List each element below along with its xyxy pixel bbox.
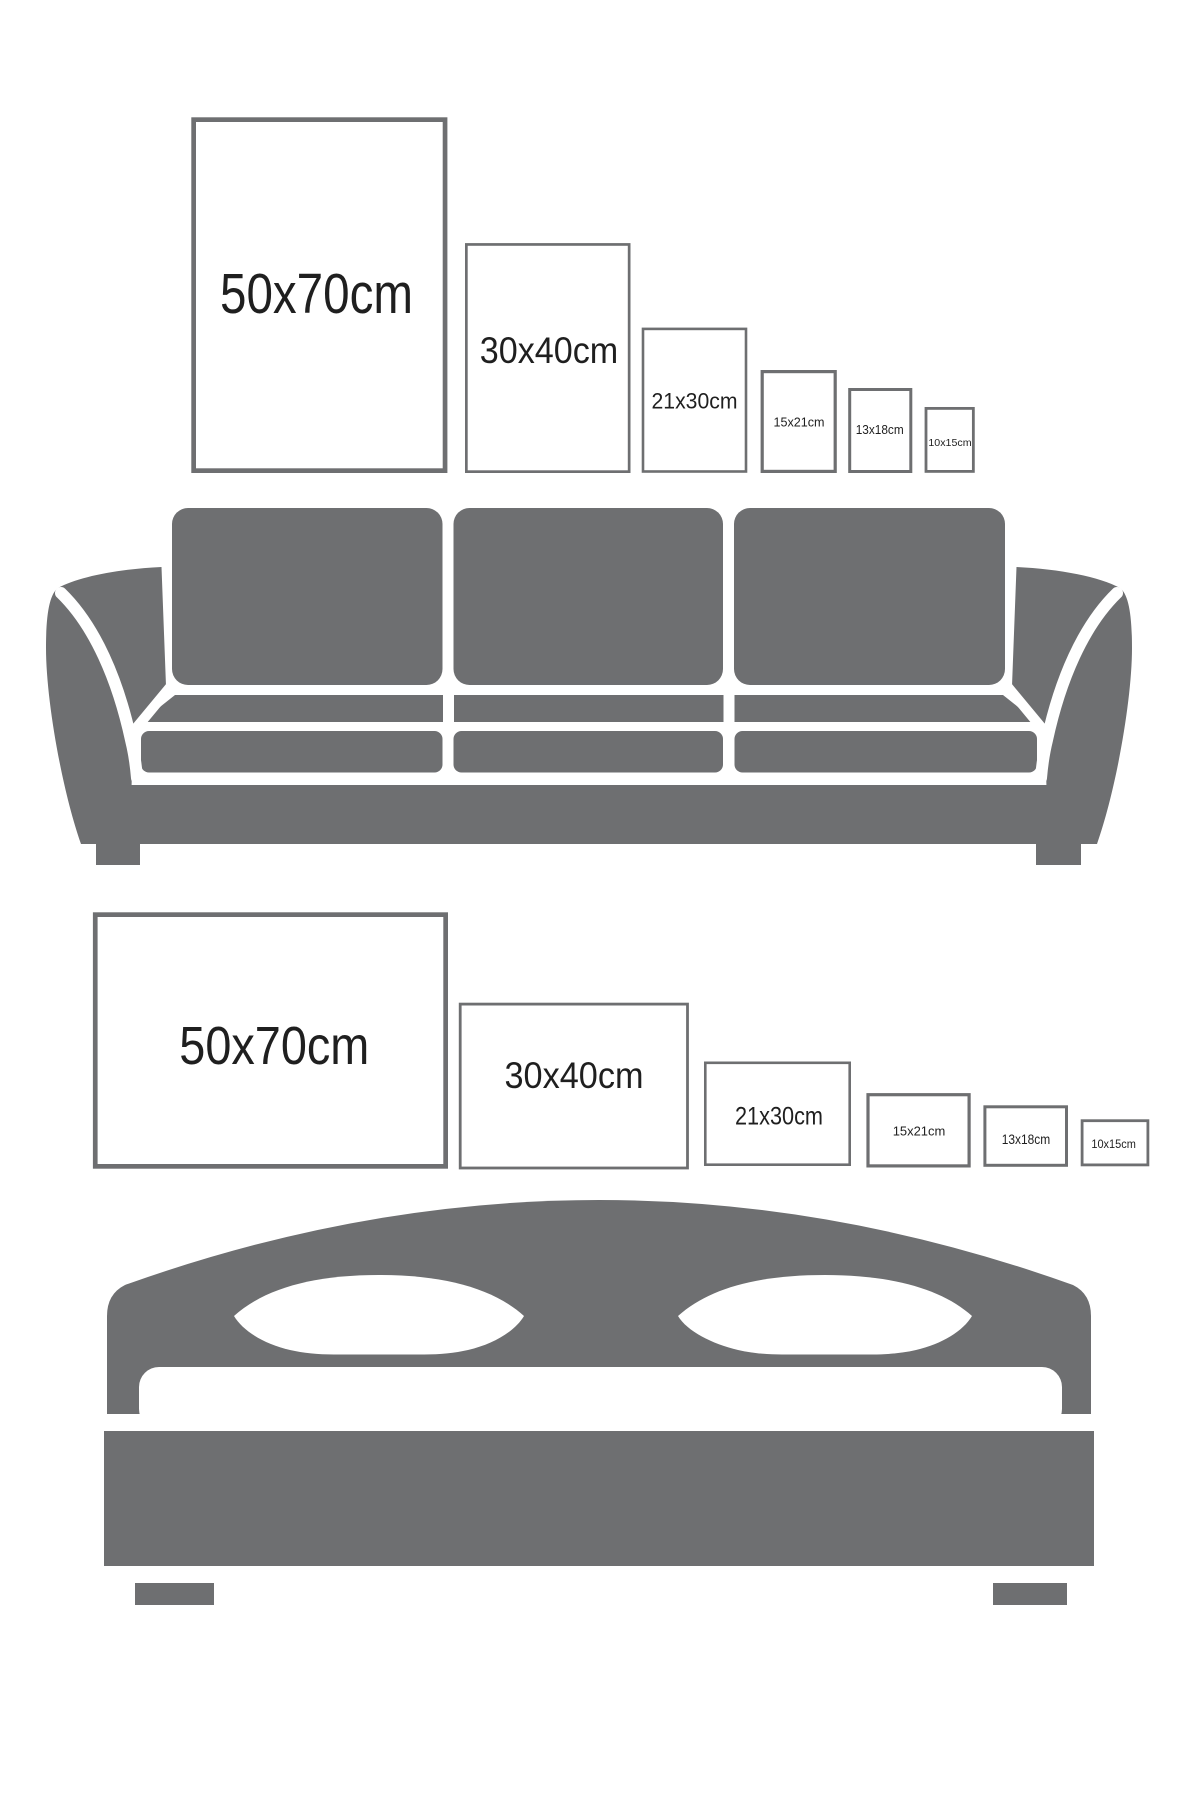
svg-text:10x15cm: 10x15cm bbox=[1091, 1137, 1136, 1151]
svg-text:13x18cm: 13x18cm bbox=[1002, 1132, 1051, 1147]
svg-text:50x70cm: 50x70cm bbox=[179, 1016, 369, 1076]
svg-text:13x18cm: 13x18cm bbox=[856, 422, 904, 437]
svg-text:15x21cm: 15x21cm bbox=[774, 415, 825, 430]
svg-text:21x30cm: 21x30cm bbox=[735, 1104, 823, 1131]
svg-text:50x70cm: 50x70cm bbox=[220, 262, 413, 325]
svg-text:21x30cm: 21x30cm bbox=[652, 389, 738, 414]
svg-text:30x40cm: 30x40cm bbox=[480, 330, 619, 371]
svg-text:15x21cm: 15x21cm bbox=[893, 1124, 946, 1139]
svg-text:30x40cm: 30x40cm bbox=[505, 1055, 644, 1096]
svg-text:10x15cm: 10x15cm bbox=[928, 438, 971, 449]
